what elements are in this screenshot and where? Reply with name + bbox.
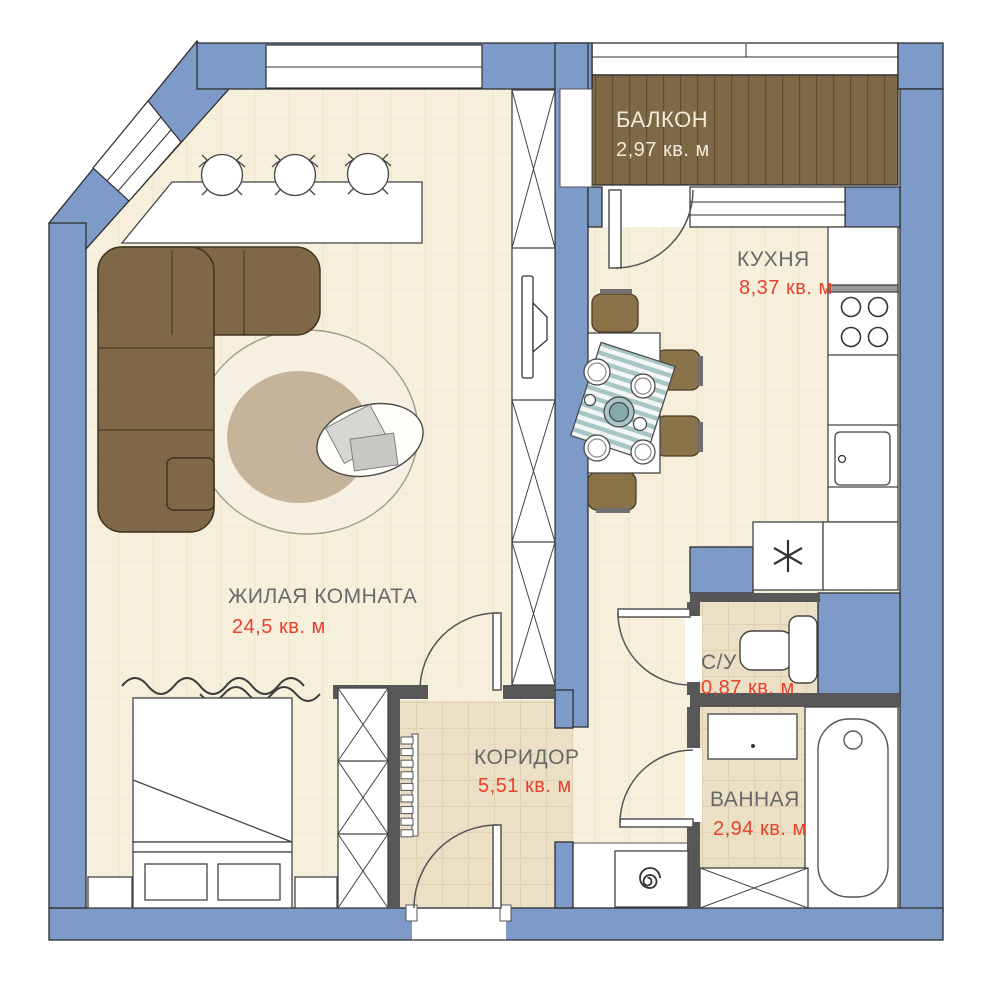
wc-label: С/У	[701, 651, 737, 674]
washing-machine-icon	[615, 851, 688, 907]
balcony-label: БАЛКОН	[616, 107, 708, 132]
bed-cushion	[218, 864, 280, 900]
bar-stools	[199, 154, 391, 196]
entrance-opening	[412, 909, 506, 940]
wc-area-label: 0,87 кв. м	[701, 677, 795, 699]
wall-kitchen-top-right	[845, 187, 900, 227]
kitchen-area-label: 8,37 кв. м	[739, 277, 833, 299]
kitchen-sink-icon	[835, 432, 890, 485]
corridor-door-threshold	[428, 685, 503, 701]
corridor-area-label: 5,51 кв. м	[478, 775, 572, 797]
kitchen-label: КУХНЯ	[737, 248, 810, 271]
bed-cushion	[145, 864, 207, 900]
wall-kitchen-bottom	[690, 593, 820, 602]
wc-door-opening	[685, 616, 702, 682]
nightstand	[88, 877, 132, 908]
wall-kitchen-chunk	[690, 547, 753, 593]
floor-plan: БАЛКОН 2,97 кв. м	[0, 0, 988, 1000]
wall-corridor-right-top	[555, 690, 573, 728]
nightstand	[295, 877, 337, 908]
living-room-area-label: 24,5 кв. м	[232, 616, 326, 638]
bathroom-area-label: 2,94 кв. м	[713, 818, 807, 840]
hallway-radiator	[401, 734, 418, 837]
entrance-jamb-left	[406, 905, 417, 921]
bathroom-cabinet	[700, 868, 808, 908]
wall-corridor-right-bottom	[555, 842, 573, 908]
wall-white-block	[560, 89, 592, 187]
sofa-ottoman	[167, 458, 214, 510]
tv-wardrobe-column	[512, 90, 555, 685]
magazine	[350, 433, 398, 471]
bathroom-door-opening	[685, 748, 702, 822]
tv-icon	[522, 276, 533, 378]
balcony-area-label: 2,97 кв. м	[616, 139, 710, 161]
living-room-label: ЖИЛАЯ КОМНАТА	[228, 585, 417, 608]
wall-corridor-top-right	[503, 685, 555, 699]
stove-panel	[828, 285, 898, 292]
wall-left	[49, 223, 86, 908]
bathtub-icon	[805, 707, 898, 908]
balcony: БАЛКОН 2,97 кв. м	[592, 43, 898, 185]
kitchen-counter-end	[823, 522, 898, 590]
window-kitchen	[690, 187, 845, 227]
bathroom-label: ВАННАЯ	[710, 788, 800, 811]
bedroom-wardrobe	[338, 688, 388, 908]
wall-balcony-corner	[898, 43, 943, 89]
wall-wc-right-chunk	[818, 593, 900, 700]
wall-bedroom-corridor	[388, 687, 400, 908]
floor-plan-page: БАЛКОН 2,97 кв. м	[0, 0, 988, 1000]
wall-kitchen-top-left	[588, 187, 602, 227]
corridor-label: КОРИДОР	[474, 746, 580, 769]
double-bed	[133, 698, 292, 908]
washbasin-icon	[708, 714, 797, 759]
corridor-floor	[400, 700, 573, 908]
balcony-window	[592, 43, 898, 75]
wall-right	[900, 89, 943, 912]
